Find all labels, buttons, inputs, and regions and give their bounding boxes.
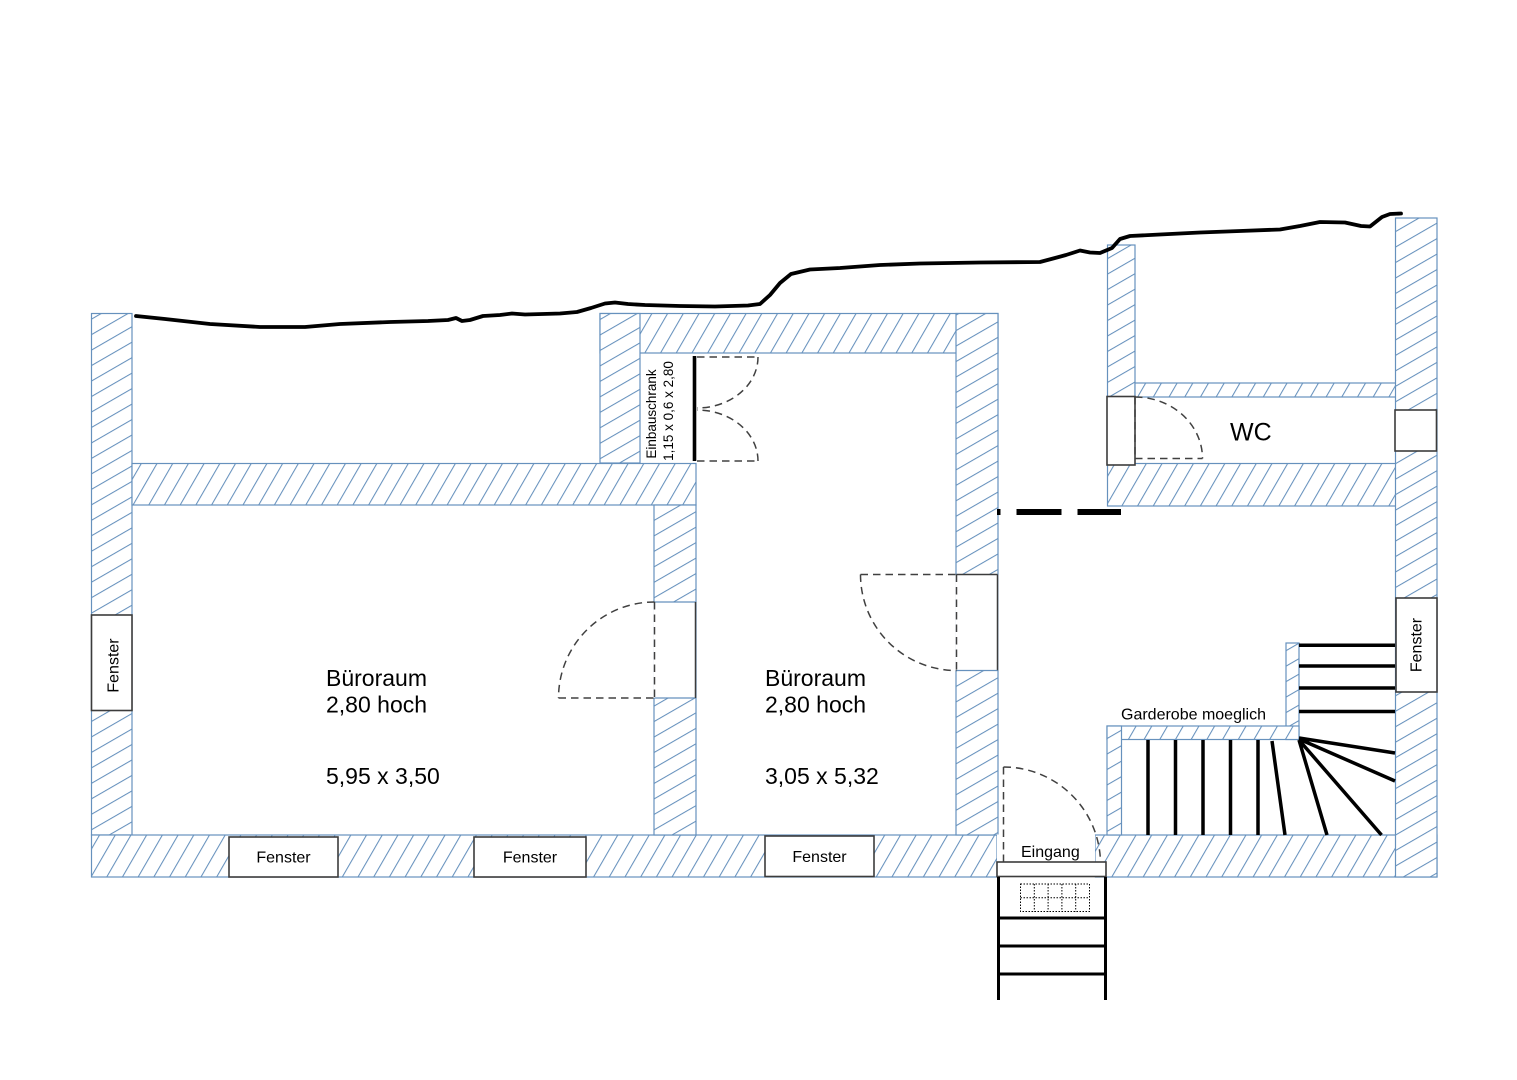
svg-text:5,95 x 3,50: 5,95 x 3,50 xyxy=(326,763,440,789)
svg-text:WC: WC xyxy=(1230,419,1272,447)
svg-text:Büroraum: Büroraum xyxy=(326,665,427,691)
svg-text:3,05 x 5,32: 3,05 x 5,32 xyxy=(765,763,879,789)
svg-text:Einbauschrank: Einbauschrank xyxy=(644,369,659,459)
svg-text:Garderobe moeglich: Garderobe moeglich xyxy=(1121,707,1266,724)
svg-text:1,15 x 0,6 x 2,80: 1,15 x 0,6 x 2,80 xyxy=(661,361,676,461)
svg-text:Fenster: Fenster xyxy=(1409,617,1426,672)
svg-text:2,80 hoch: 2,80 hoch xyxy=(326,692,427,718)
svg-text:Fenster: Fenster xyxy=(106,638,123,693)
svg-text:Eingang: Eingang xyxy=(1021,844,1080,861)
svg-text:2,80 hoch: 2,80 hoch xyxy=(765,692,866,718)
svg-text:Fenster: Fenster xyxy=(792,849,847,866)
svg-text:Büroraum: Büroraum xyxy=(765,665,866,691)
svg-text:Fenster: Fenster xyxy=(256,850,311,867)
svg-text:Fenster: Fenster xyxy=(503,850,558,867)
